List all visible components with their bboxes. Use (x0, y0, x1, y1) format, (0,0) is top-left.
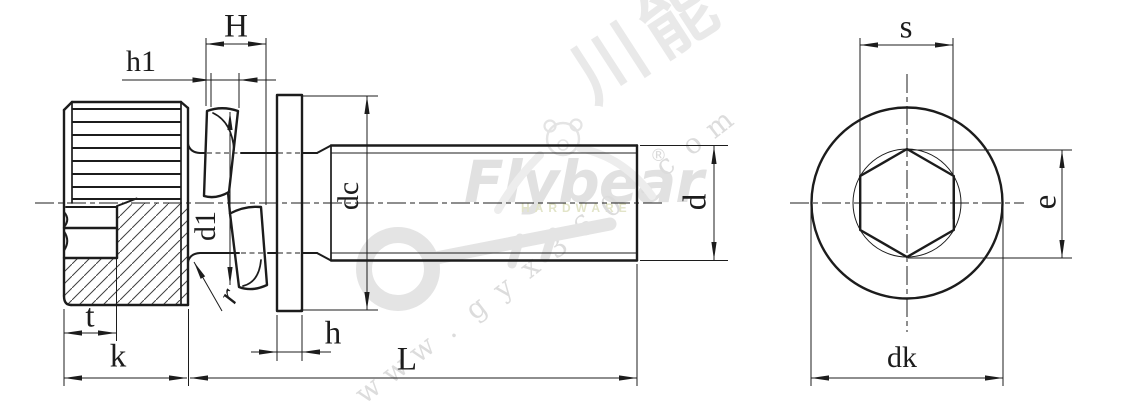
spring-washer (204, 108, 267, 289)
extension-lines (64, 38, 1072, 386)
watermark-key-doodle (364, 224, 610, 303)
engineering-drawing-canvas: Flybear HARDWARE ® 川能 www.gyx360.com (0, 0, 1141, 405)
watermark-bear-doodle (498, 120, 652, 211)
dimension-lines (64, 44, 1062, 378)
knurl-lines (72, 109, 181, 199)
end-view (790, 74, 1024, 332)
drawing-svg (0, 0, 1141, 405)
